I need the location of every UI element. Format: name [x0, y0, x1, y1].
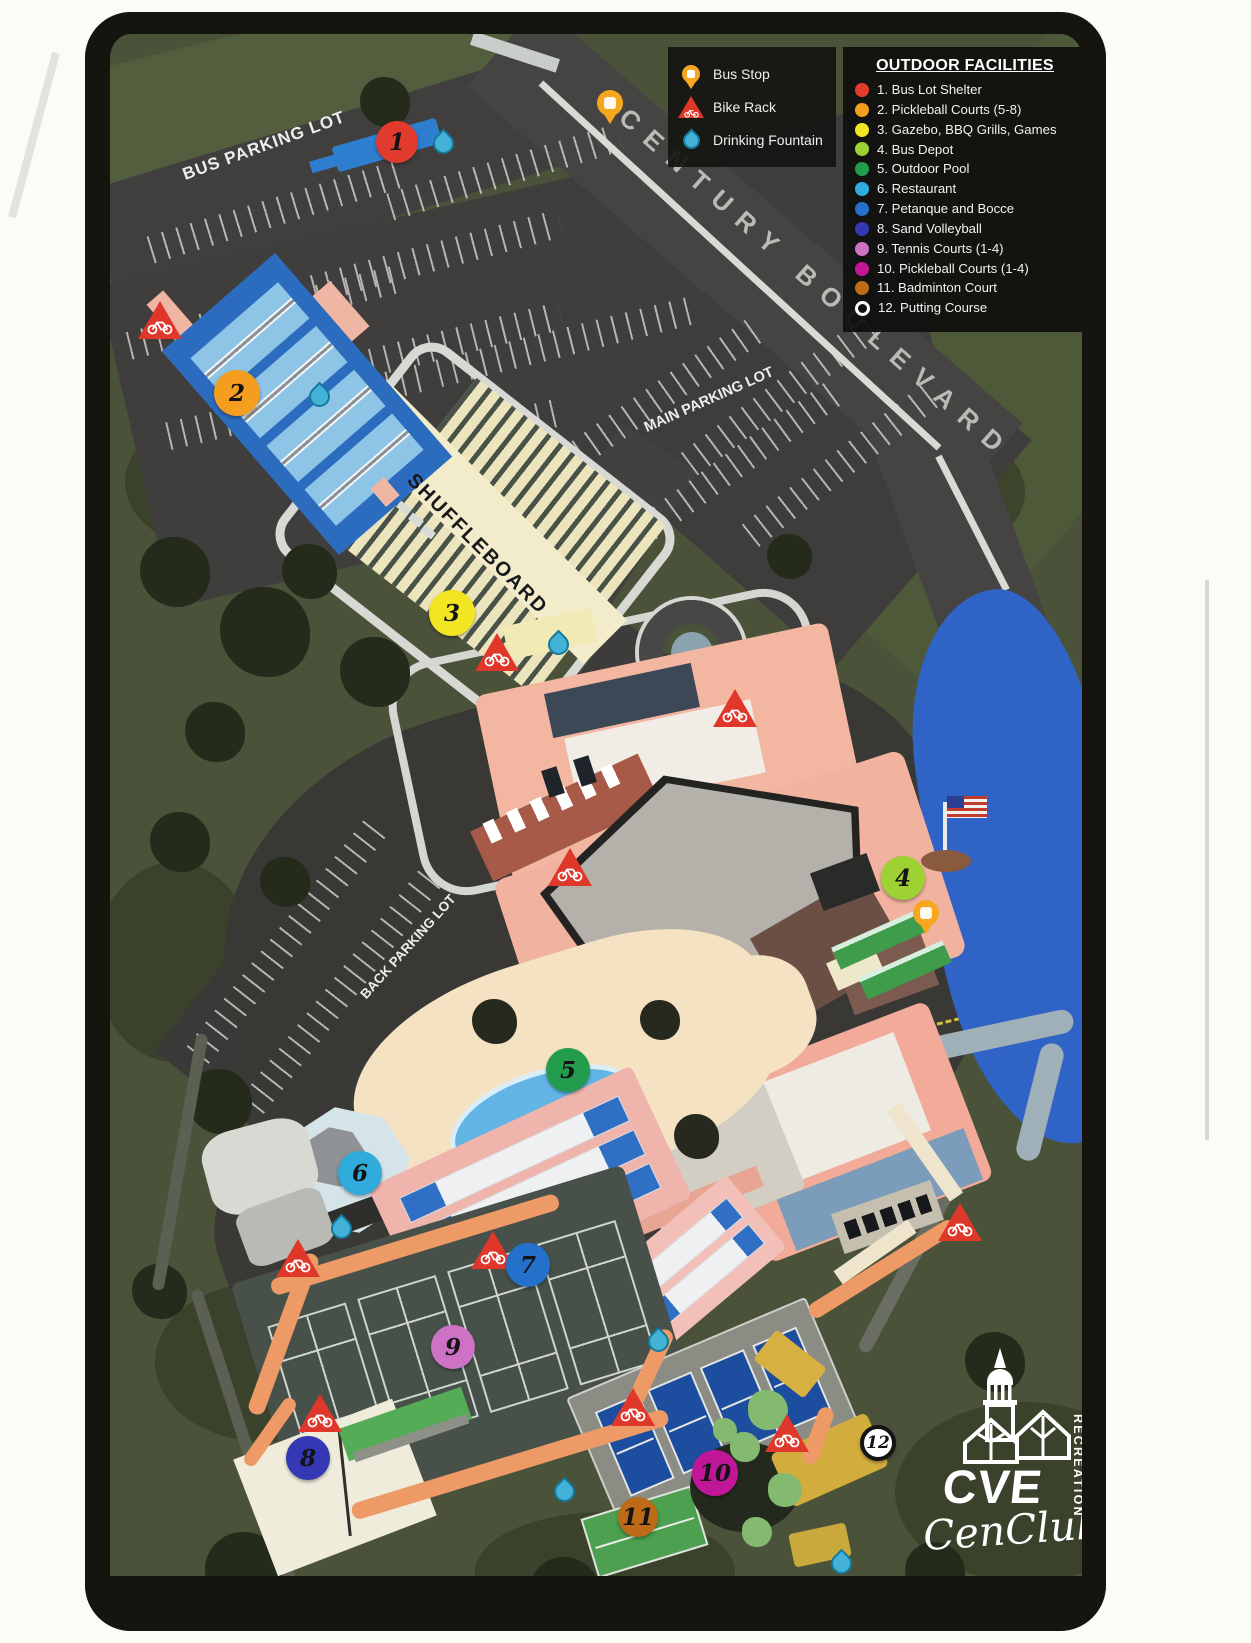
outdoor-facilities-title: OUTDOOR FACILITIES: [855, 57, 1075, 75]
bush: [674, 1114, 719, 1159]
facility-label: 2. Pickleball Courts (5-8): [877, 102, 1021, 118]
facility-legend-item: 6. Restaurant: [855, 181, 1075, 197]
putting-green: [713, 1418, 737, 1442]
flag-mound: [921, 850, 971, 872]
facility-legend-item: 4. Bus Depot: [855, 142, 1075, 158]
facility-label: 6. Restaurant: [877, 181, 956, 197]
outdoor-facilities-list: 1. Bus Lot Shelter2. Pickleball Courts (…: [855, 82, 1075, 316]
facility-legend-item: 8. Sand Volleyball: [855, 221, 1075, 237]
map-marker-9: 9: [431, 1325, 475, 1369]
symbol-icon-cell: [678, 60, 704, 88]
facility-legend-item: 12. Putting Course: [855, 300, 1075, 316]
facility-color-dot: [855, 301, 870, 316]
facility-label: 7. Petanque and Bocce: [877, 201, 1014, 217]
map-marker-8: 8: [286, 1436, 330, 1480]
facility-label: 5. Outdoor Pool: [877, 161, 969, 177]
facility-legend-item: 1. Bus Lot Shelter: [855, 82, 1075, 98]
facility-color-dot: [855, 242, 869, 256]
map-marker-7: 7: [506, 1243, 550, 1287]
facility-legend-item: 2. Pickleball Courts (5-8): [855, 102, 1075, 118]
map-marker-3: 3: [429, 590, 475, 636]
facility-color-dot: [855, 202, 869, 216]
facility-color-dot: [855, 123, 869, 137]
tree: [185, 702, 245, 762]
bus-stop-icon: [682, 65, 700, 83]
map-marker-6: 6: [338, 1151, 382, 1195]
facility-legend-item: 7. Petanque and Bocce: [855, 201, 1075, 217]
tree: [340, 637, 410, 707]
putting-green: [742, 1517, 772, 1547]
facility-legend-item: 5. Outdoor Pool: [855, 161, 1075, 177]
drinking-fountain-icon: [679, 128, 703, 152]
tree: [530, 1557, 600, 1627]
facility-legend-item: 10. Pickleball Courts (1-4): [855, 261, 1075, 277]
symbol-legend: Bus StopBike RackDrinking Fountain: [668, 47, 836, 167]
map-marker-2: 2: [214, 370, 260, 416]
tree: [140, 537, 210, 607]
outdoor-facilities-legend: OUTDOOR FACILITIES 1. Bus Lot Shelter2. …: [843, 47, 1087, 332]
tree: [150, 812, 210, 872]
facility-label: 1. Bus Lot Shelter: [877, 82, 982, 98]
scan-streak: [8, 52, 60, 218]
scan-streak: [1205, 580, 1209, 1140]
putting-green: [768, 1473, 802, 1507]
facility-label: 11. Badminton Court: [877, 280, 997, 296]
drinking-fountain-icon: [550, 1477, 580, 1507]
scanned-page: BUS PARKING LOT CENTURY BOULEVARD MAIN P…: [0, 0, 1251, 1643]
facility-label: 3. Gazebo, BBQ Grills, Games: [877, 122, 1057, 138]
facility-legend-item: 11. Badminton Court: [855, 280, 1075, 296]
symbol-label: Bike Rack: [713, 99, 776, 115]
flag-canton: [947, 796, 964, 808]
facility-color-dot: [855, 142, 869, 156]
facility-color-dot: [855, 83, 869, 97]
us-flag: [947, 796, 987, 818]
tree: [260, 857, 310, 907]
map-marker-12: 12: [860, 1425, 896, 1461]
symbol-icon-cell: [678, 126, 704, 154]
facility-label: 4. Bus Depot: [877, 142, 953, 158]
facility-legend-item: 9. Tennis Courts (1-4): [855, 241, 1075, 257]
map-marker-10: 10: [692, 1450, 738, 1496]
map-marker-1: 1: [376, 121, 418, 163]
map-marker-11: 11: [618, 1497, 658, 1537]
facility-label: 9. Tennis Courts (1-4): [877, 241, 1004, 257]
symbol-legend-items: Bus StopBike RackDrinking Fountain: [678, 60, 826, 154]
facility-color-dot: [855, 281, 869, 295]
map-marker-5: 5: [546, 1048, 590, 1092]
bush: [472, 999, 517, 1044]
tree: [282, 544, 337, 599]
facility-color-dot: [855, 262, 869, 276]
facility-color-dot: [855, 162, 869, 176]
bike-rack-icon: [678, 96, 704, 118]
symbol-legend-item: Drinking Fountain: [678, 126, 826, 154]
symbol-icon-cell: [678, 93, 704, 121]
trail: [152, 1033, 209, 1291]
facility-label: 10. Pickleball Courts (1-4): [877, 261, 1029, 277]
symbol-legend-item: Bike Rack: [678, 93, 826, 121]
facility-legend-item: 3. Gazebo, BBQ Grills, Games: [855, 122, 1075, 138]
map-marker-4: 4: [881, 856, 925, 900]
symbol-legend-item: Bus Stop: [678, 60, 826, 88]
tree: [767, 534, 812, 579]
facility-label: 8. Sand Volleyball: [877, 221, 982, 237]
bush: [640, 1000, 680, 1040]
facility-color-dot: [855, 222, 869, 236]
bus-stop-icon: [913, 900, 939, 926]
tree: [220, 587, 310, 677]
symbol-label: Drinking Fountain: [713, 132, 823, 148]
facility-color-dot: [855, 182, 869, 196]
facility-label: 12. Putting Course: [878, 300, 987, 316]
symbol-label: Bus Stop: [713, 66, 770, 82]
facilities-map: BUS PARKING LOT CENTURY BOULEVARD MAIN P…: [85, 12, 1106, 1631]
facility-color-dot: [855, 103, 869, 117]
